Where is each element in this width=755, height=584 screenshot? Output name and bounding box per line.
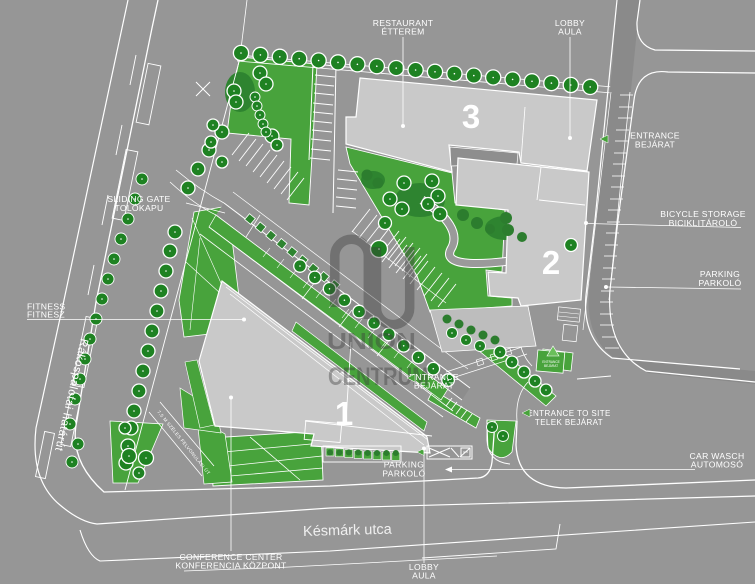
svg-text:AUTOMOSÓ: AUTOMOSÓ [691, 460, 743, 470]
svg-text:BEJÁRAT: BEJÁRAT [414, 381, 455, 391]
svg-text:BEJÁRAT: BEJÁRAT [635, 140, 676, 150]
svg-text:AULA: AULA [412, 571, 436, 581]
svg-text:BEJÁRAT: BEJÁRAT [544, 364, 558, 368]
svg-text:PARKOLÓ: PARKOLÓ [698, 278, 741, 288]
svg-text:ÉTTEREM: ÉTTEREM [381, 27, 424, 37]
svg-text:TELEK BEJÁRAT: TELEK BEJÁRAT [535, 418, 603, 427]
svg-text:TOLÓKAPU: TOLÓKAPU [114, 203, 163, 213]
svg-text:PARKOLÓ: PARKOLÓ [382, 469, 425, 479]
svg-text:1: 1 [335, 395, 353, 432]
svg-text:ENTRANCE TO SITE: ENTRANCE TO SITE [527, 409, 610, 418]
svg-text:3: 3 [462, 98, 480, 135]
svg-text:FITNESZ: FITNESZ [27, 310, 65, 320]
svg-text:2: 2 [542, 244, 560, 281]
svg-text:UNION: UNION [327, 328, 416, 354]
svg-text:Késmárk utca: Késmárk utca [303, 522, 393, 540]
svg-text:AULA: AULA [558, 27, 582, 37]
